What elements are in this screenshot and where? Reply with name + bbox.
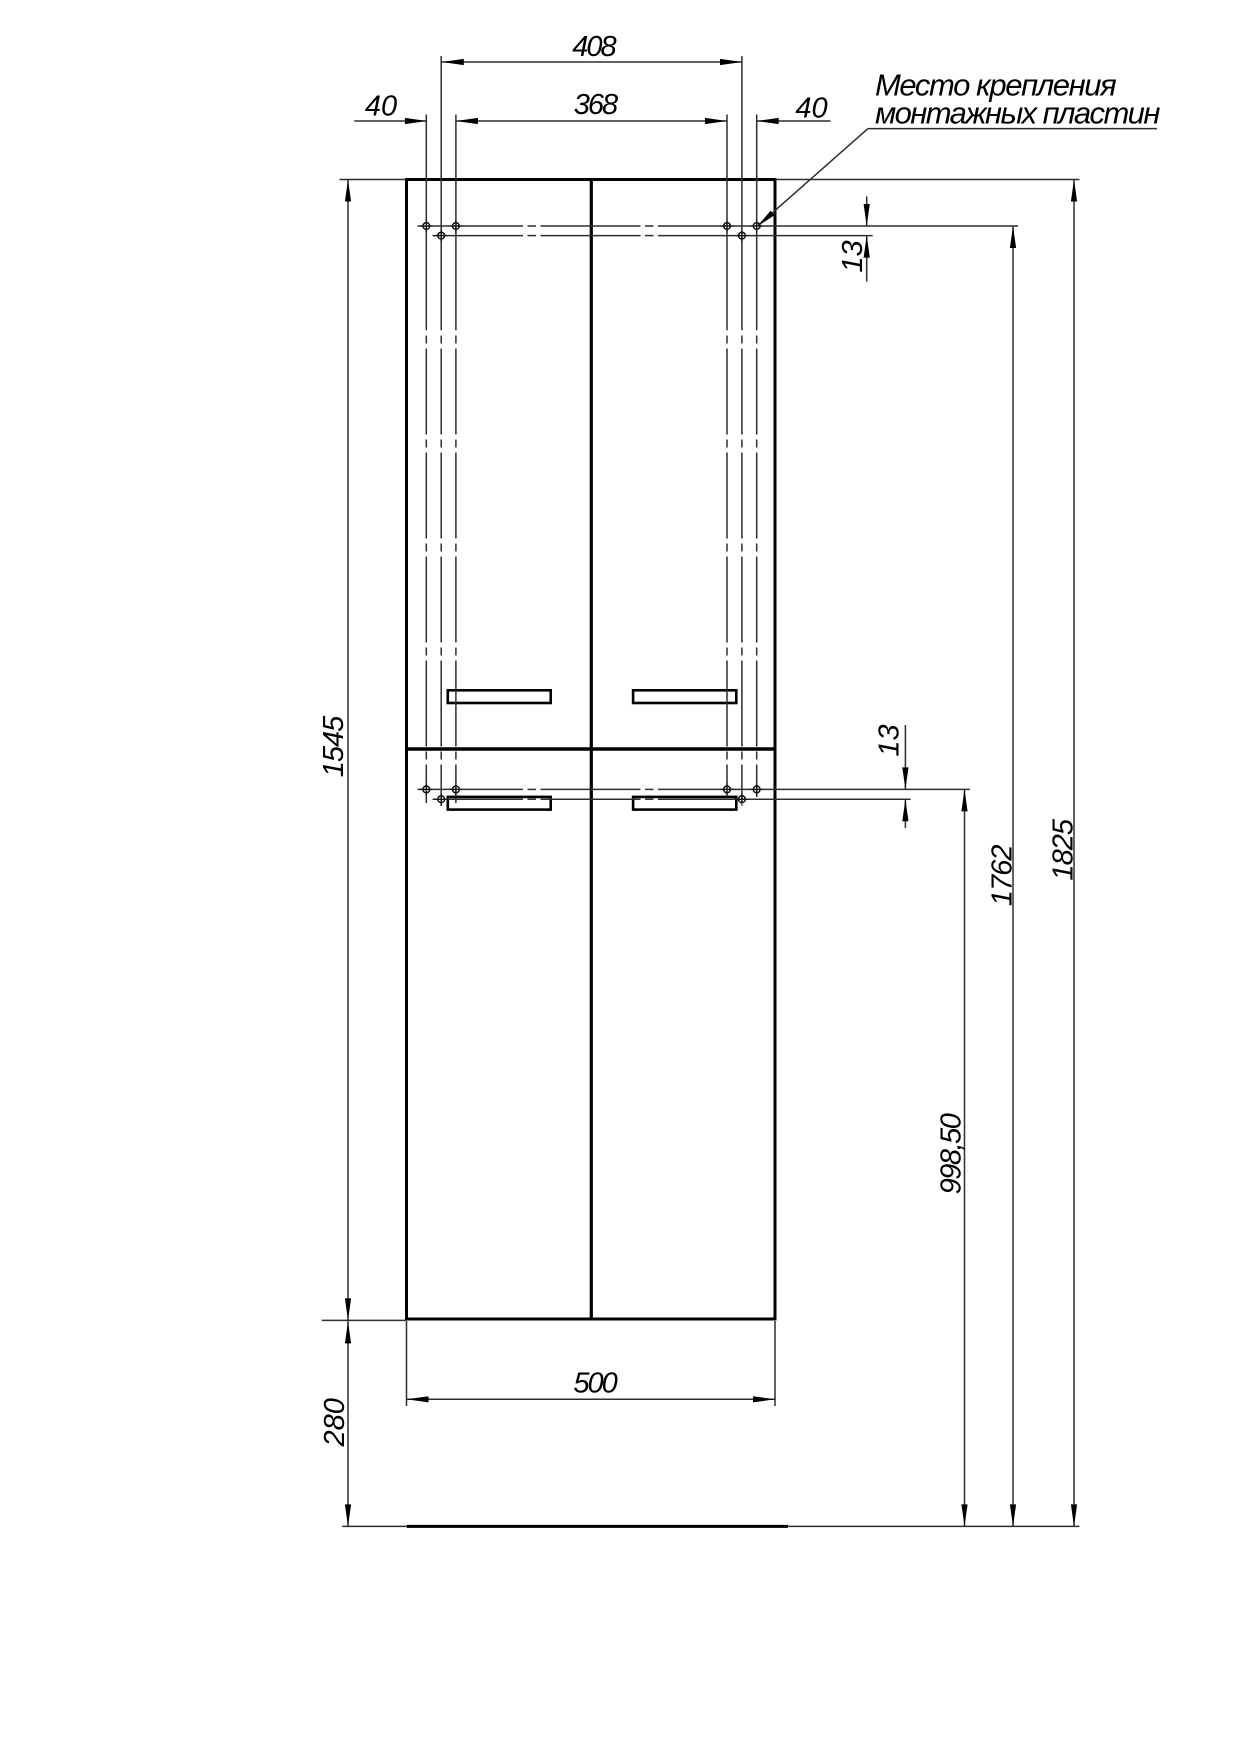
svg-text:монтажных пластин: монтажных пластин (875, 96, 1160, 131)
svg-text:40: 40 (795, 93, 827, 125)
svg-text:998,50: 998,50 (936, 1113, 968, 1194)
svg-text:1825: 1825 (1048, 818, 1080, 880)
svg-text:40: 40 (365, 91, 397, 123)
svg-text:1545: 1545 (318, 715, 350, 777)
svg-text:13: 13 (874, 724, 906, 756)
svg-text:368: 368 (574, 89, 618, 121)
svg-text:280: 280 (319, 1398, 351, 1447)
svg-text:500: 500 (573, 1368, 617, 1400)
svg-text:1762: 1762 (987, 845, 1019, 906)
svg-text:408: 408 (572, 31, 616, 63)
svg-text:13: 13 (837, 240, 869, 272)
